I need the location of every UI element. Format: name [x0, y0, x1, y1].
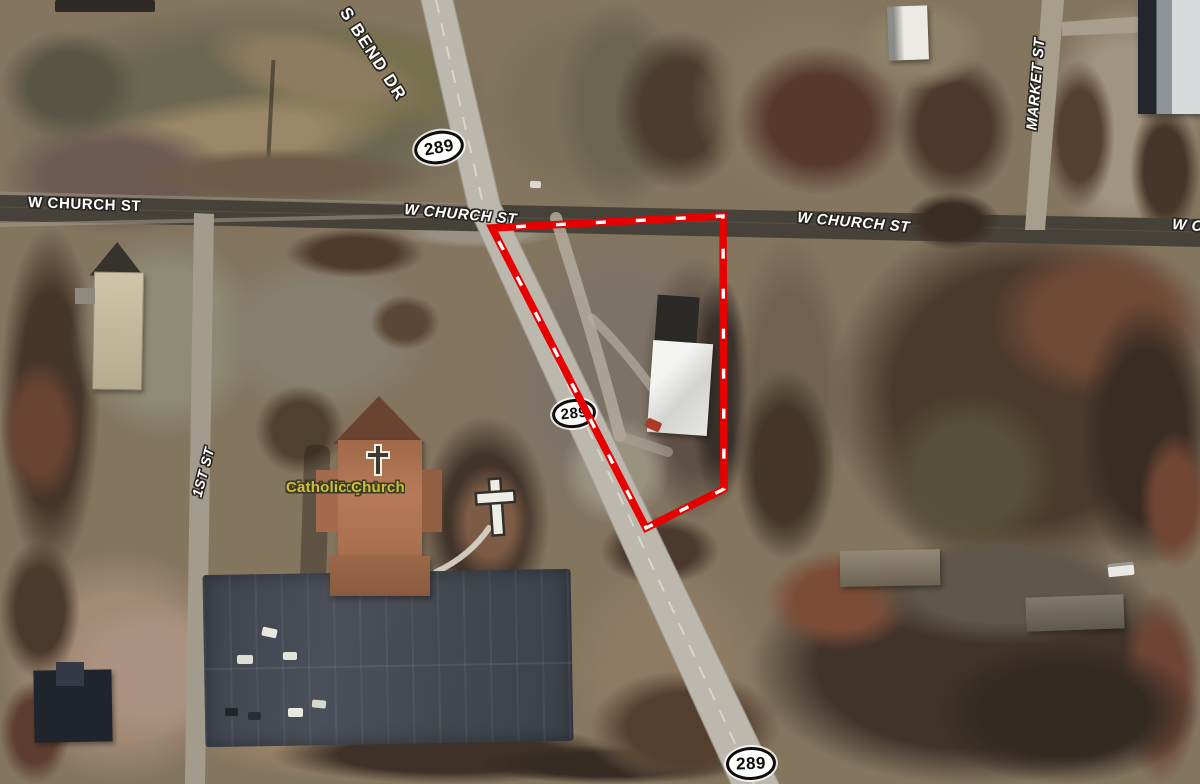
parcel-boundary-layer	[0, 0, 1200, 784]
parcel-boundary-outline	[492, 216, 724, 528]
parcel-boundary-dashes	[492, 216, 724, 528]
satellite-map-canvas: W CHURCH ST W CHURCH ST W CHURCH ST W CH…	[0, 0, 1200, 784]
